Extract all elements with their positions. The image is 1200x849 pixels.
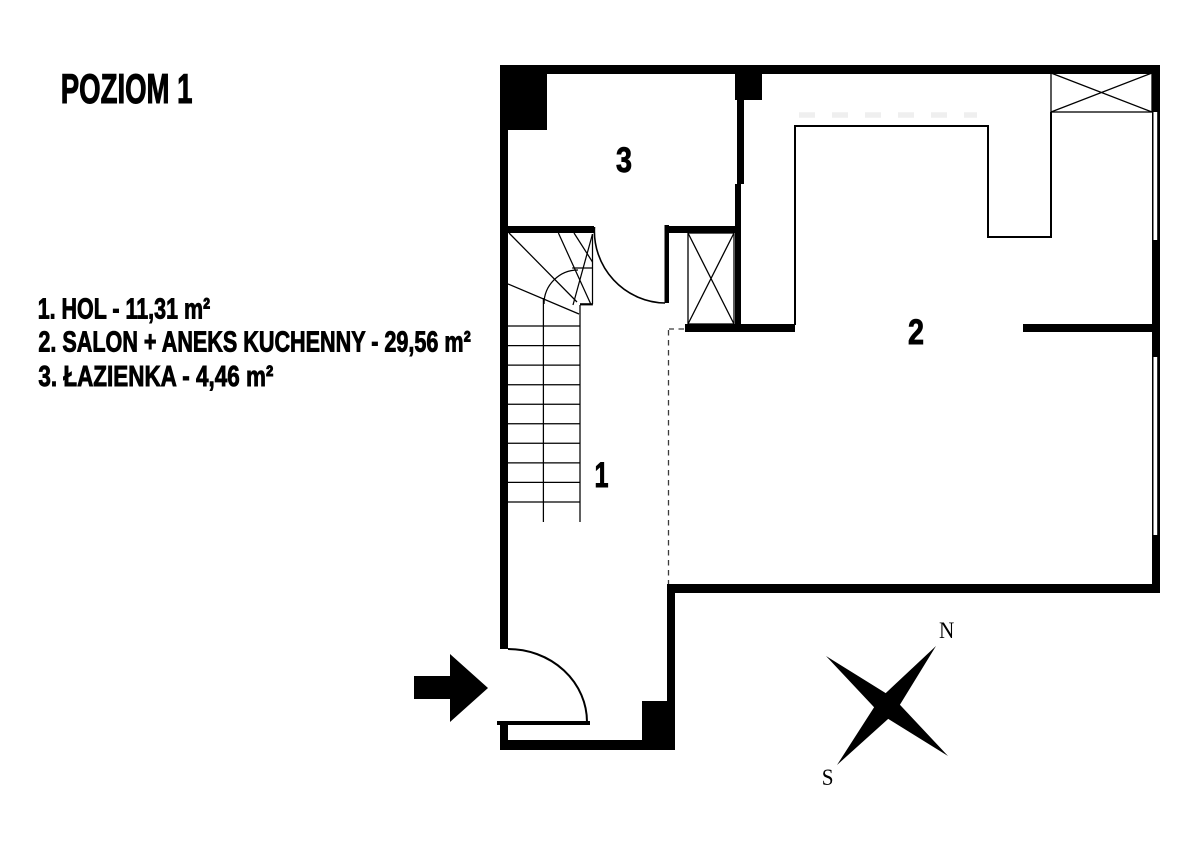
svg-text:POZIOM 1: POZIOM 1 — [61, 65, 193, 112]
svg-text:S: S — [822, 765, 834, 790]
svg-text:1. HOL - 11,31 m²: 1. HOL - 11,31 m² — [38, 294, 211, 326]
svg-text:N: N — [939, 618, 954, 644]
svg-text:3. ŁAZIENKA - 4,46 m²: 3. ŁAZIENKA - 4,46 m² — [38, 361, 273, 393]
svg-text:2. SALON + ANEKS KUCHENNY - 29: 2. SALON + ANEKS KUCHENNY - 29,56 m² — [38, 326, 471, 358]
svg-text:3: 3 — [616, 141, 632, 180]
svg-text:2: 2 — [908, 313, 924, 352]
svg-text:1: 1 — [595, 456, 609, 495]
